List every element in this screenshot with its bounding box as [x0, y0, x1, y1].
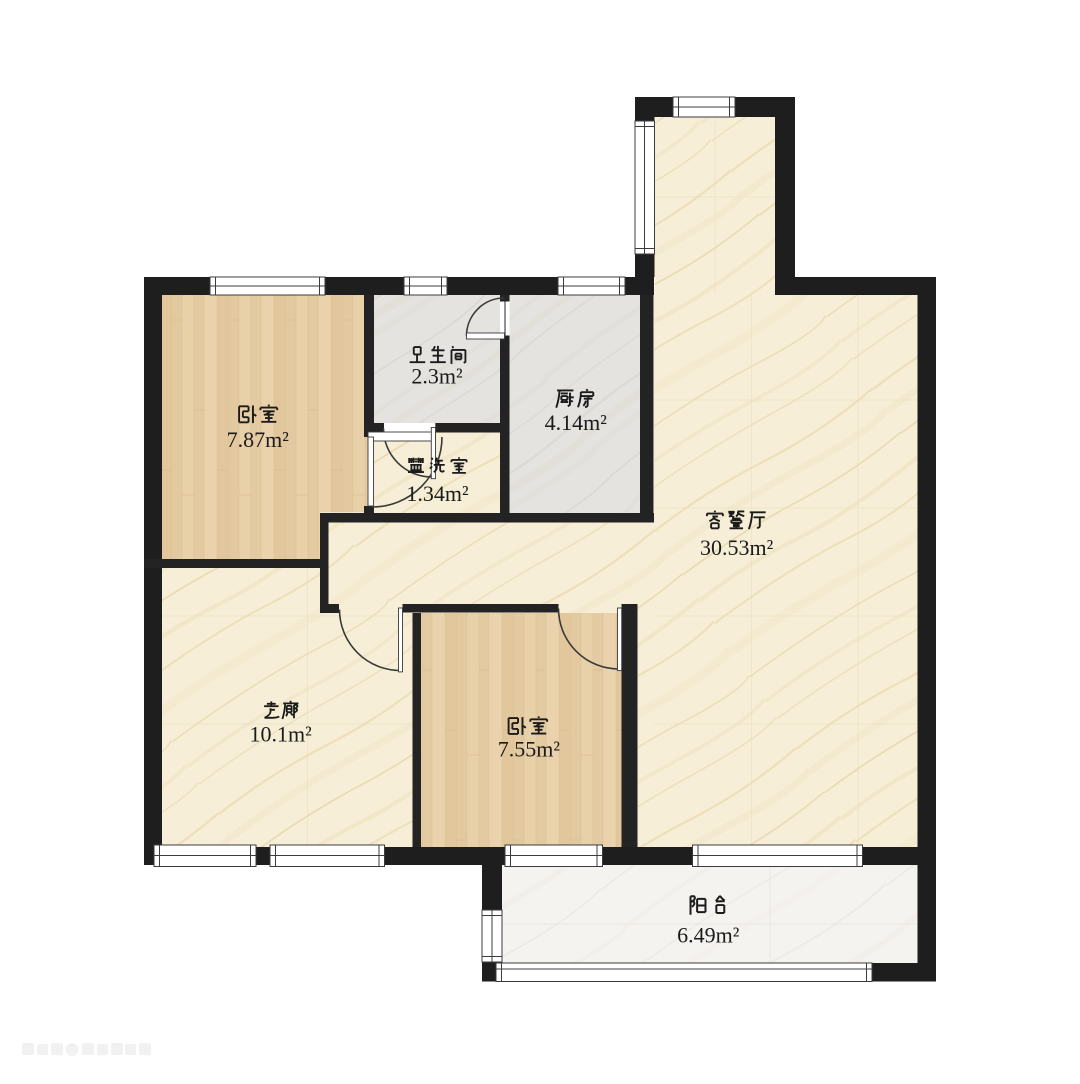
svg-text:1.34m²: 1.34m²: [406, 481, 469, 506]
svg-text:10.1m²: 10.1m²: [249, 722, 312, 747]
svg-text:2.3m²: 2.3m²: [411, 364, 463, 389]
svg-text:7.55m²: 7.55m²: [498, 737, 561, 762]
svg-text:7.87m²: 7.87m²: [227, 427, 290, 452]
svg-text:30.53m²: 30.53m²: [700, 535, 774, 560]
svg-text:6.49m²: 6.49m²: [677, 923, 740, 948]
svg-text:4.14m²: 4.14m²: [545, 410, 608, 435]
